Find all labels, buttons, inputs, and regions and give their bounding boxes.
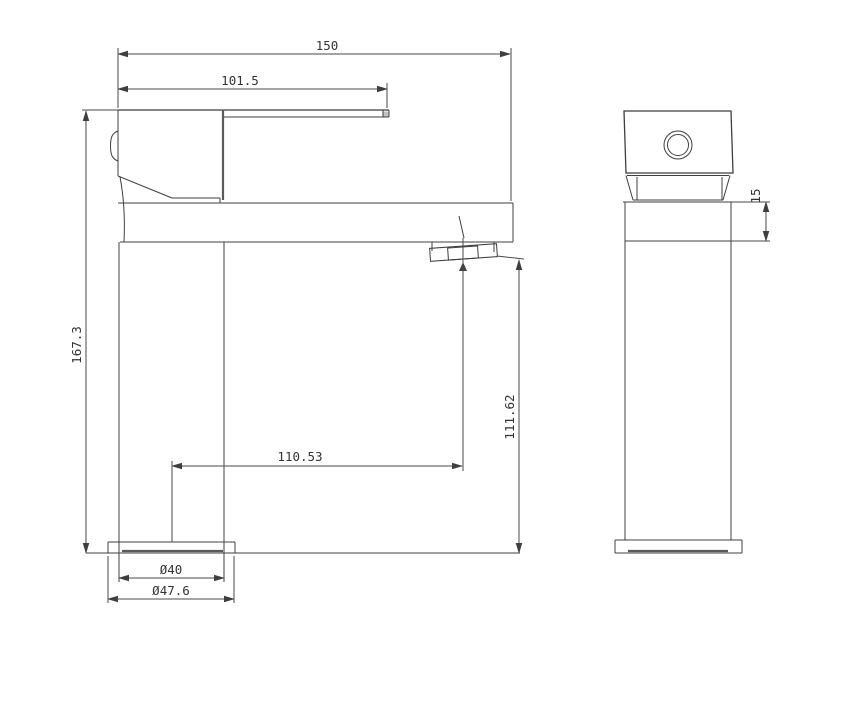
dim-label-spout-length: 101.5 [221,73,259,88]
canvas-background [0,0,853,723]
dim-label-body-diameter: Ø40 [160,562,183,577]
faucet-technical-drawing: 150 101.5 167.3 110.53 111.62 [0,0,853,723]
technical-drawing-page: 150 101.5 167.3 110.53 111.62 [0,0,853,723]
dim-label-collar-height: 15 [748,188,763,203]
dim-label-spout-center-offset: 110.53 [277,449,322,464]
spout-tip-shade [384,112,389,117]
dim-label-outlet-height: 111.62 [502,394,517,439]
dim-label-base-diameter: Ø47.6 [152,583,190,598]
dim-label-overall-height: 167.3 [69,326,84,364]
dim-label-overall-length: 150 [316,38,339,53]
